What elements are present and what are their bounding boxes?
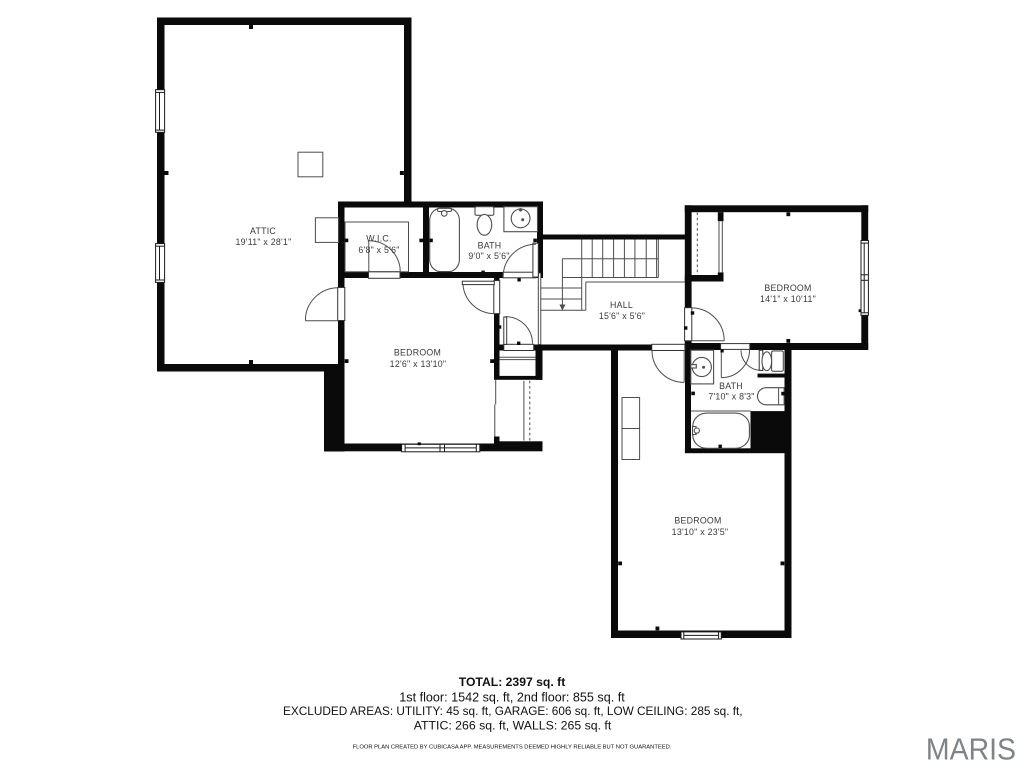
svg-text:6'8" x 5'6": 6'8" x 5'6" xyxy=(358,245,399,255)
svg-text:9'0" x 5'6": 9'0" x 5'6" xyxy=(468,251,509,261)
svg-text:FLOOR PLAN CREATED BY CUBICASA: FLOOR PLAN CREATED BY CUBICASA APP. MEAS… xyxy=(353,745,672,751)
svg-text:13'10" x 23'5": 13'10" x 23'5" xyxy=(672,527,729,537)
svg-text:7'10" x 8'3": 7'10" x 8'3" xyxy=(708,392,754,402)
svg-text:TOTAL: 2397 sq. ft: TOTAL: 2397 sq. ft xyxy=(459,675,566,689)
svg-text:BEDROOM: BEDROOM xyxy=(764,283,811,293)
svg-text:1st floor: 1542 sq. ft, 2nd fl: 1st floor: 1542 sq. ft, 2nd floor: 855 s… xyxy=(399,690,625,704)
svg-text:14'1" x 10'11": 14'1" x 10'11" xyxy=(760,294,816,304)
svg-text:12'6" x 13'10": 12'6" x 13'10" xyxy=(390,359,447,369)
svg-text:BEDROOM: BEDROOM xyxy=(674,515,721,525)
svg-text:MARIS: MARIS xyxy=(926,732,1016,766)
svg-text:W.I.C.: W.I.C. xyxy=(366,234,391,244)
svg-text:BATH: BATH xyxy=(719,381,743,391)
svg-text:19'11" x 28'1": 19'11" x 28'1" xyxy=(236,237,292,247)
svg-text:ATTIC: ATTIC xyxy=(250,226,276,236)
svg-text:HALL: HALL xyxy=(610,300,633,310)
svg-text:BATH: BATH xyxy=(478,241,502,251)
svg-text:15'6" x 5'6": 15'6" x 5'6" xyxy=(599,311,645,321)
svg-text:BEDROOM: BEDROOM xyxy=(394,347,441,357)
svg-text:EXCLUDED AREAS: UTILITY: 45 sq: EXCLUDED AREAS: UTILITY: 45 sq. ft, GARA… xyxy=(283,704,743,718)
svg-text:ATTIC: 266 sq. ft, WALLS: 265: ATTIC: 266 sq. ft, WALLS: 265 sq. ft xyxy=(414,718,612,732)
